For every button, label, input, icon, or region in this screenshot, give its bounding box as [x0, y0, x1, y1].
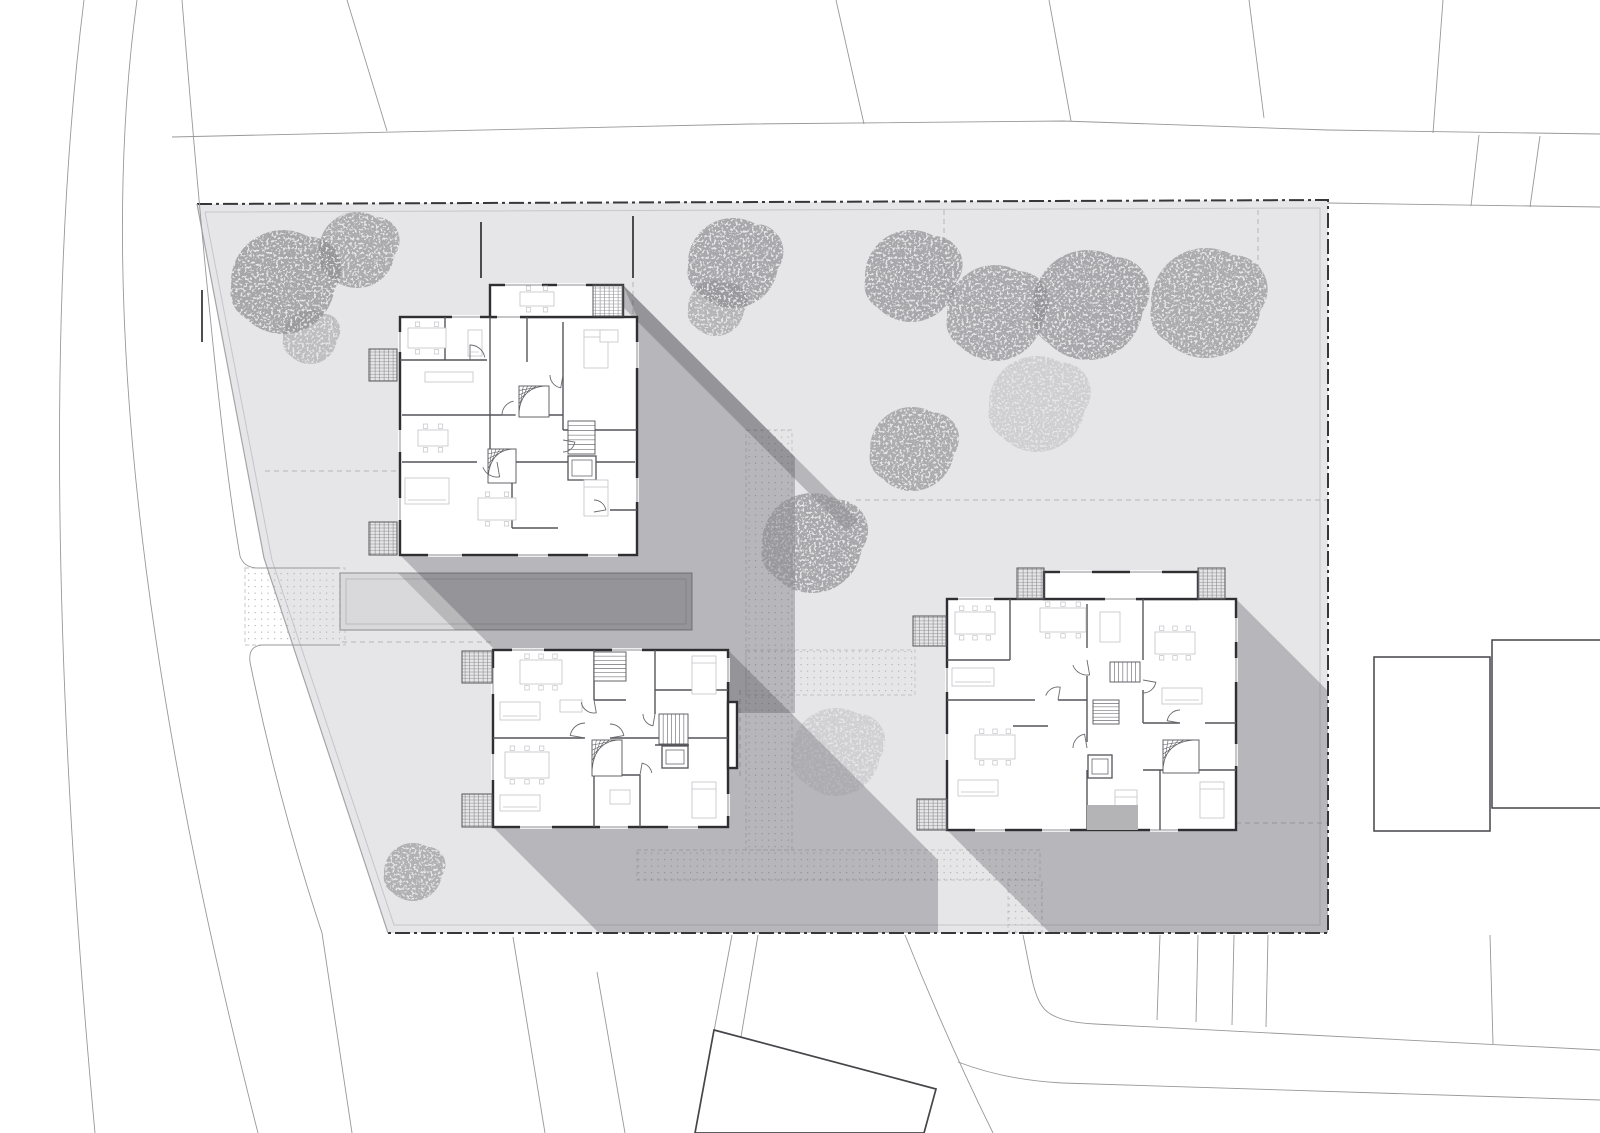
- tree-canopy-lobe: [247, 233, 299, 285]
- balcony-hatched: [369, 522, 397, 555]
- furniture-table: [1155, 632, 1195, 654]
- entrance-porch: [1087, 805, 1138, 830]
- tree-canopy-lobe: [1020, 402, 1068, 450]
- tree-canopy-lobe: [330, 214, 368, 252]
- road-line: [1049, 0, 1071, 121]
- furniture-table: [478, 498, 516, 520]
- tree-canopy-lobe: [706, 307, 734, 335]
- road-line: [122, 0, 258, 1133]
- furniture-table: [975, 735, 1015, 759]
- tree-canopy-lobe: [291, 311, 318, 338]
- tree-canopy-lobe: [344, 248, 382, 286]
- road-line: [741, 935, 758, 1037]
- road-line: [597, 972, 625, 1133]
- tree-canopy-lobe: [777, 496, 827, 546]
- balcony-hatched: [593, 285, 623, 316]
- tree-canopy-lobe: [403, 871, 432, 900]
- furniture-sofa: [500, 702, 540, 720]
- furniture-bed: [1200, 782, 1224, 818]
- tree-canopy-lobe: [1069, 302, 1124, 357]
- balcony-hatched: [462, 794, 492, 827]
- road-line: [1023, 935, 1600, 1050]
- road-line: [1328, 203, 1600, 207]
- tree-canopy-lobe: [696, 281, 724, 309]
- road-line: [836, 0, 864, 124]
- tree-canopy-lobe: [895, 274, 941, 320]
- balcony-hatched: [913, 616, 946, 646]
- plan-root: [59, 0, 1600, 1133]
- tree-canopy-lobe: [1003, 358, 1051, 406]
- road-line: [1232, 935, 1234, 1025]
- road-line: [1490, 935, 1493, 1044]
- furniture-sofa: [1162, 688, 1202, 704]
- tree-canopy-lobe: [805, 710, 849, 754]
- furniture-bed: [692, 782, 716, 818]
- furniture-sofa: [952, 668, 994, 686]
- neighbor-building: [695, 1030, 936, 1133]
- tree-canopy-lobe: [301, 336, 328, 363]
- furniture-misc: [600, 330, 618, 342]
- stair-outline: [519, 386, 549, 417]
- building-1: [369, 285, 637, 555]
- road-line: [1471, 135, 1479, 206]
- tree-canopy-lobe: [883, 409, 925, 451]
- furniture-table: [418, 430, 448, 446]
- building-3: [913, 568, 1236, 830]
- road-line: [1196, 935, 1198, 1022]
- tree-canopy-lobe: [879, 232, 925, 278]
- balcony-hatched: [917, 799, 947, 830]
- tree-canopy-lobe: [897, 447, 939, 489]
- footpath: [245, 568, 345, 645]
- road-line: [1157, 935, 1160, 1020]
- balcony-hatched: [462, 651, 492, 683]
- furniture-bed: [692, 656, 716, 694]
- road-line: [1249, 0, 1264, 118]
- building-2: [462, 650, 737, 827]
- road-line: [958, 1062, 1600, 1100]
- elevator-shaft: [1088, 755, 1112, 778]
- stair-outline: [592, 740, 622, 776]
- furniture-table: [408, 328, 446, 348]
- road-line: [59, 0, 95, 1133]
- balcony-hatched: [369, 349, 397, 381]
- tree-canopy-lobe: [961, 267, 1009, 315]
- tree-canopy-lobe: [795, 541, 845, 591]
- neighbor-building: [1374, 657, 1490, 831]
- furniture-table: [955, 612, 995, 634]
- stair-outline: [1163, 740, 1199, 773]
- road-line: [347, 0, 387, 131]
- tree-canopy-lobe: [1050, 253, 1105, 308]
- tree-canopy-lobe: [1168, 251, 1223, 306]
- neighbor-building: [1492, 640, 1600, 808]
- tree-canopy-lobe: [702, 220, 747, 265]
- road-line: [1266, 935, 1268, 1027]
- tree-canopy-lobe: [1187, 300, 1242, 355]
- site-plan-drawing: [0, 0, 1600, 1133]
- building-outline: [728, 702, 737, 768]
- balcony-hatched: [1198, 568, 1225, 599]
- road-line: [1530, 136, 1540, 207]
- furniture-table: [1040, 608, 1086, 632]
- furniture-misc: [425, 372, 473, 382]
- furniture-misc: [1100, 612, 1120, 642]
- tree-canopy-lobe: [821, 750, 865, 794]
- furniture-misc: [610, 790, 630, 804]
- furniture-misc: [560, 700, 582, 712]
- road-line: [714, 935, 732, 1031]
- building-outline: [1044, 572, 1198, 599]
- tree-canopy-lobe: [978, 311, 1026, 359]
- tree-canopy-lobe: [393, 844, 422, 873]
- balcony-hatched: [1017, 568, 1044, 599]
- road-line: [513, 937, 545, 1133]
- furniture-table: [520, 660, 562, 684]
- stair-outline: [488, 449, 516, 483]
- furniture-table: [520, 292, 554, 306]
- site-plan-svg: [0, 0, 1600, 1133]
- furniture-table: [505, 752, 549, 778]
- furniture-sofa: [958, 780, 998, 796]
- road-line: [1433, 0, 1443, 133]
- furniture-sofa: [500, 795, 540, 811]
